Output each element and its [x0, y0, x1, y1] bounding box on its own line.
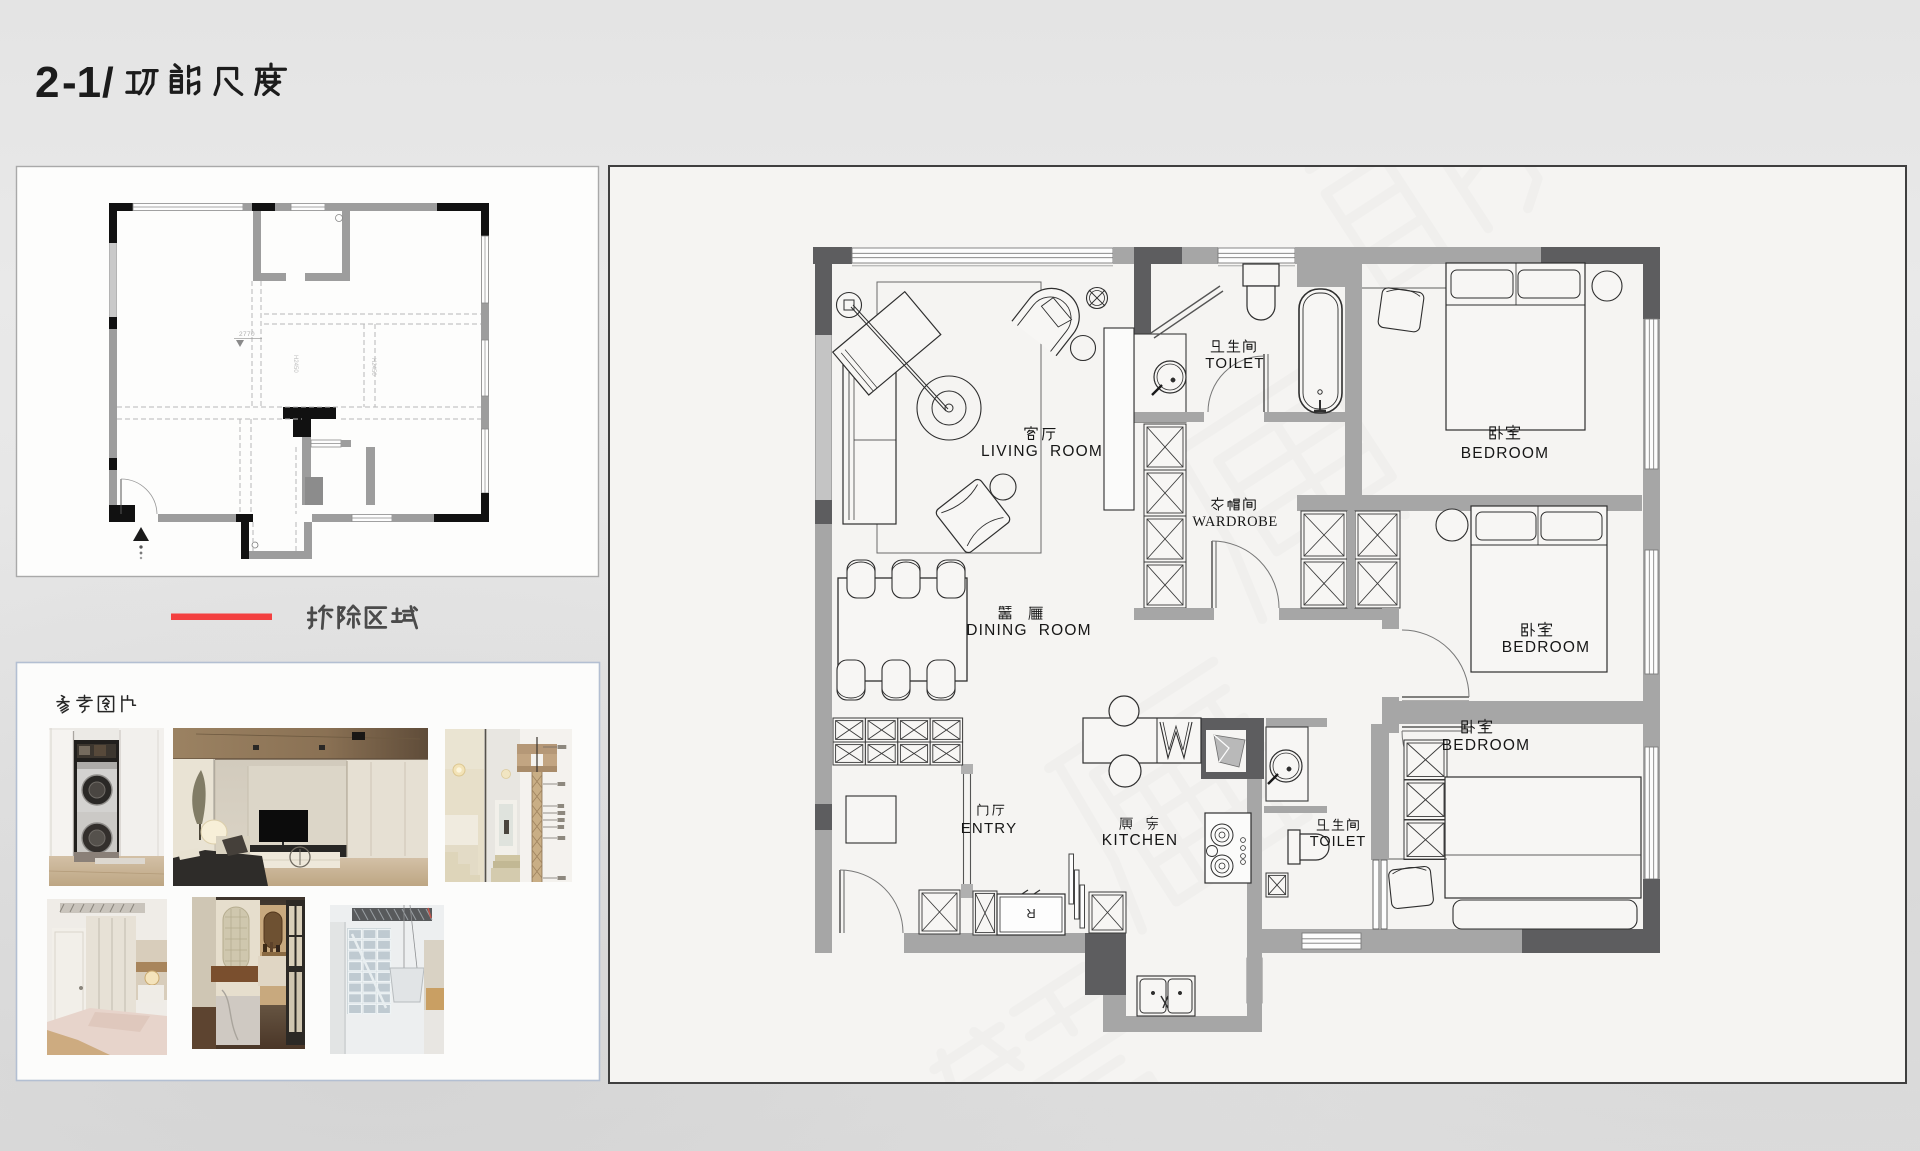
svg-text:LIVING ROOM: LIVING ROOM	[981, 443, 1103, 460]
svg-text:ENTRY: ENTRY	[961, 820, 1018, 837]
svg-text:/: /	[102, 59, 114, 106]
svg-text:WARDROBE: WARDROBE	[1192, 514, 1277, 530]
svg-text:BEDROOM: BEDROOM	[1502, 639, 1591, 656]
svg-text:BEDROOM: BEDROOM	[1442, 737, 1531, 754]
svg-text:H2450: H2450	[370, 358, 376, 376]
svg-text:TOILET: TOILET	[1205, 355, 1264, 372]
svg-text:TOILET: TOILET	[1310, 834, 1367, 850]
svg-text:2: 2	[35, 58, 59, 107]
svg-text:-1: -1	[62, 58, 101, 107]
svg-text:DINING ROOM: DINING ROOM	[966, 622, 1091, 639]
svg-text:2770: 2770	[239, 331, 255, 338]
svg-text:KITCHEN: KITCHEN	[1102, 832, 1178, 849]
svg-text:BEDROOM: BEDROOM	[1461, 445, 1550, 462]
svg-text:H2450: H2450	[292, 355, 298, 373]
svg-text:R: R	[1026, 906, 1035, 921]
